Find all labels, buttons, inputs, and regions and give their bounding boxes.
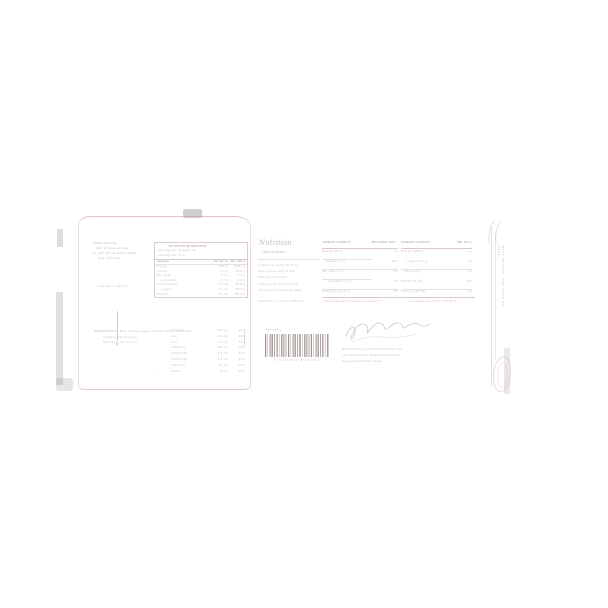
- mid-list-divider: [322, 248, 398, 249]
- footnote-right: an average adult diet of 8700 kJ.: [408, 300, 474, 305]
- vitamin-row: Folate50 ug25%: [171, 370, 245, 376]
- nutrition-rows: Energy420 kJ1680 kJ Protein5.2 g20.8 g F…: [157, 265, 245, 297]
- paragraph-line: calcium and a creamier taste.: [258, 288, 324, 294]
- right-list-row: Calcium 160 mg5%: [401, 290, 472, 300]
- mid-list-header-left: AVERAGE QUANTITY: [322, 241, 357, 246]
- background-patch-left-lower: [56, 292, 63, 385]
- barcode-digits: 9 312345 678901: [265, 358, 329, 363]
- mid-list-rows: Energy 420 kJ5% Protein 5.2 g10% Fat, to…: [322, 250, 398, 300]
- package-corner-fold: [483, 218, 505, 244]
- footnote-left: *Percentage Daily Intakes are based on: [323, 300, 396, 305]
- barcode: [265, 334, 329, 357]
- right-list-rows: Energy 1680 kJ1 g - sugars 12.4 g2% Fibr…: [401, 250, 472, 300]
- manufacturer-block: Manufactured by Example Foods Pty Ltd 12…: [342, 347, 434, 365]
- allergen-line: Contains milk and soy.: [103, 336, 137, 341]
- footnote-divider: [322, 297, 475, 298]
- preparation-text: PREPARATION: Add 2 level scoops to 200 m…: [93, 241, 155, 261]
- panel-subtitle: Information: [262, 249, 286, 254]
- right-list-header-right: PER 100 g: [446, 241, 472, 246]
- right-list-header-left: AVERAGE QUANTITY: [401, 241, 437, 246]
- mid-list-row: Carbohydrate 17 g6%: [322, 290, 398, 300]
- best-before-vertical-text: BEST BEFORE: SEE BASE OF PACK: [497, 246, 505, 316]
- serving-size: Serving size: 25 g: [158, 254, 213, 259]
- nutrition-table: NUTRITION INFORMATION Servings per packa…: [154, 242, 248, 298]
- vitamins-table-edge: [244, 330, 245, 346]
- scoop-note: 1 scoop = 12.5 g: [98, 284, 144, 289]
- panel-paragraph: A delicious malted drink to enjoy at any…: [258, 263, 324, 294]
- barcode-top-label: NET 400 G: [266, 329, 298, 334]
- signature-scribble: [342, 316, 436, 348]
- right-list-divider: [401, 248, 472, 249]
- mid-list-separator: [322, 279, 372, 280]
- panel-title: Nutrition: [259, 239, 292, 247]
- table-row: Sodium45 mg180 mg: [157, 293, 245, 298]
- ingredients-mark: ...: [151, 371, 161, 376]
- mid-list-separator: [322, 269, 398, 270]
- preparation-line: and mix well.: [93, 256, 155, 261]
- right-list-row: Energy 1680 kJ1 g: [401, 250, 472, 260]
- background-patch-bottom-left: [56, 378, 73, 391]
- storage-line: Store in a cool, dry place.: [103, 341, 137, 346]
- package-edge-line: [491, 227, 492, 387]
- package-edge-line: [495, 231, 496, 359]
- background-patch-left-upper: [57, 229, 63, 247]
- right-list-separator: [401, 269, 472, 270]
- mid-list-header-right: PER SERVE %DI*: [363, 241, 396, 246]
- right-list-separator: [401, 289, 472, 290]
- panel-title-divider: [258, 259, 320, 260]
- mid-list-separator: [322, 259, 372, 260]
- mid-list-separator: [322, 289, 398, 290]
- vitamins-table: Calcium160 mg20% Iron3.0 mg25% Zinc1.5 m…: [171, 329, 245, 375]
- right-list-row: Fibre 1.6 g4%: [401, 270, 472, 280]
- faded-package-photo: PREPARATION: Add 2 level scoops to 200 m…: [0, 0, 608, 608]
- manufacturer-line: www.examplefoods.com.au: [342, 359, 434, 365]
